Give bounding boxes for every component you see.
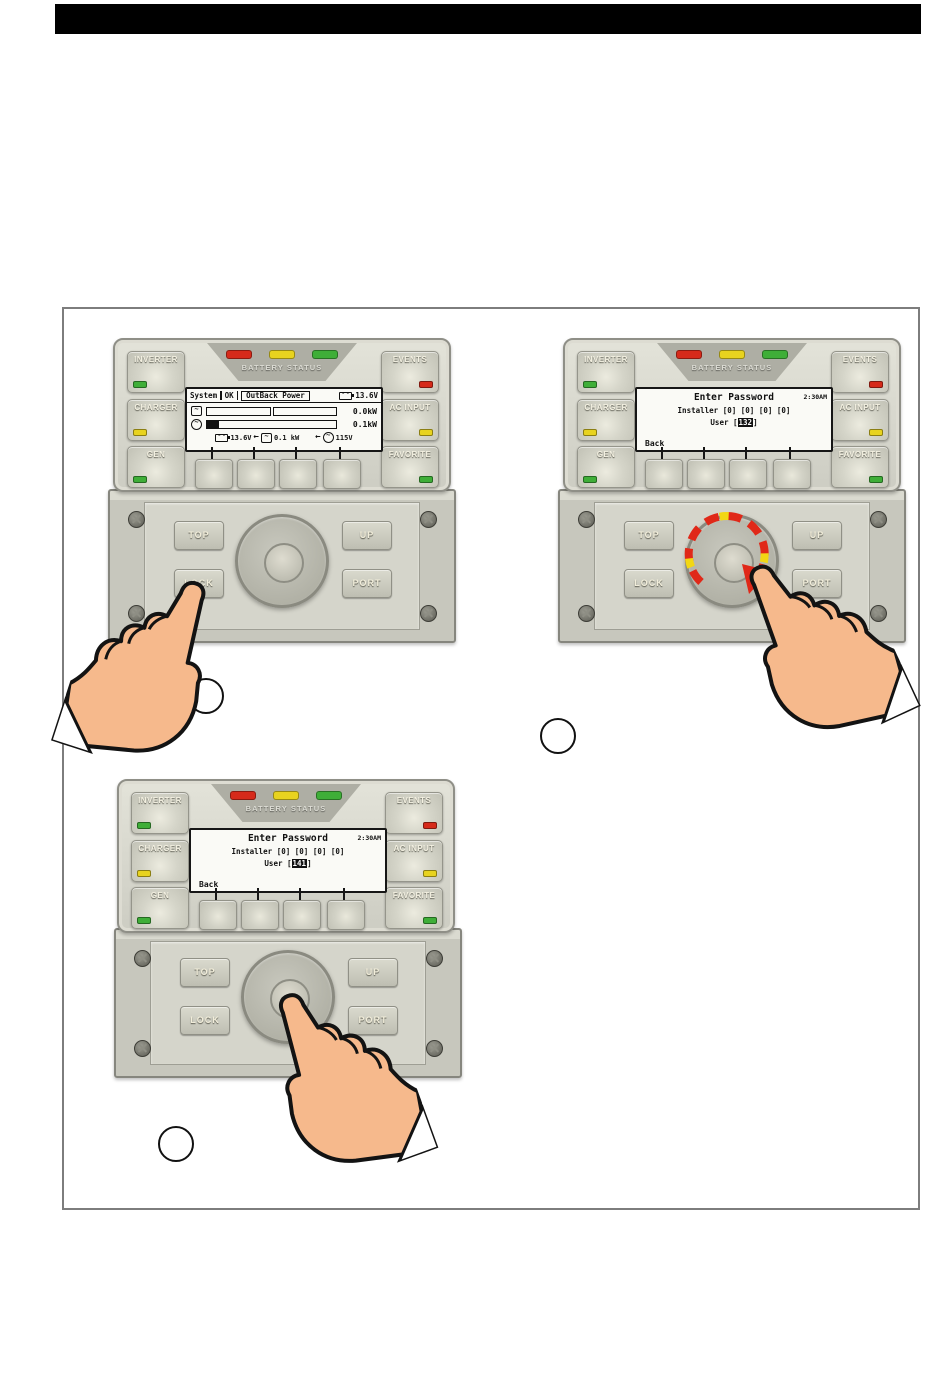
ac-power-bar [206,420,337,429]
battery-icon [339,392,352,400]
battery-status-panel: BATTERY STATUS [657,343,807,381]
inverter-button[interactable]: INVERTER [127,351,185,393]
inverter-led [133,381,147,388]
inverter-icon [191,406,202,416]
battery-status-label: BATTERY STATUS [657,363,807,372]
favorite-led [423,917,437,924]
lock-label: LOCK [625,570,673,597]
mate3-display-panel-1: INVERTER CHARGER GEN EVENTS AC INPUT FAV… [113,338,451,492]
battery-icon [215,434,228,442]
gen-led [133,476,147,483]
installer-digits: [0] [0] [0] [0] [277,847,345,856]
clock-time: 2:30AM [358,834,381,842]
lcd-password-screen: Enter Password 2:30AM Installer [0] [0] … [189,828,387,893]
screw-icon [578,605,595,622]
bracket: ] [307,859,312,868]
screw-icon [578,511,595,528]
inverter-power-value: 0.0kW [341,407,377,416]
inverter-button[interactable]: INVERTER [577,351,635,393]
ac-input-led [419,429,433,436]
inverter-icon [261,433,272,443]
soft-key-1[interactable] [195,459,233,489]
installer-digits: [0] [0] [0] [0] [723,406,791,415]
bracket: [ [287,859,292,868]
gen-button[interactable]: GEN [577,446,635,488]
footer-inverter-power: 0.1 kW [274,434,299,442]
charger-label: CHARGER [578,403,634,412]
charger-label: CHARGER [128,403,184,412]
bracket: ] [753,418,758,427]
charger-label: CHARGER [132,844,188,853]
gen-led [137,917,151,924]
lcd-status-screen: System OK OutBack Power 13.6V 0.0kW 0.1k… [185,387,383,452]
manual-figure-page: INVERTER CHARGER GEN EVENTS AC INPUT FAV… [0,0,950,1397]
top-label: TOP [625,522,673,549]
header-bar [55,4,921,34]
charger-led [133,429,147,436]
soft-key-2[interactable] [237,459,275,489]
ac-input-led [869,429,883,436]
mate3-display-panel-3: INVERTER CHARGER GEN EVENTS AC INPUT FAV… [117,779,455,933]
gen-label: GEN [128,450,184,459]
inverter-label: INVERTER [128,355,184,364]
gen-label: GEN [578,450,634,459]
screw-icon [426,950,443,967]
clock-time: 2:30AM [804,393,827,401]
divider [237,391,239,400]
bracket: [ [733,418,738,427]
port-label: PORT [343,570,391,597]
favorite-button[interactable]: FAVORITE [831,446,889,488]
top-button[interactable]: TOP [174,521,224,550]
favorite-button[interactable]: FAVORITE [381,446,439,488]
ac-icon [323,432,334,443]
inverter-label: INVERTER [132,796,188,805]
gen-label: GEN [132,891,188,900]
mate3-display-panel-2: INVERTER CHARGER GEN EVENTS AC INPUT FAV… [563,338,901,492]
up-label: UP [343,522,391,549]
soft-key-1[interactable] [645,459,683,489]
left-arrow-icon: ← [254,434,259,441]
gen-button[interactable]: GEN [131,887,189,929]
battery-status-label: BATTERY STATUS [211,804,361,813]
soft-key-3[interactable] [729,459,767,489]
battery-status-yellow-led [719,350,745,359]
ac-input-button[interactable]: AC INPUT [381,399,439,441]
gen-led [583,476,597,483]
top-label: TOP [181,959,229,986]
step-marker [158,1126,194,1162]
favorite-button[interactable]: FAVORITE [385,887,443,929]
footer-ac-voltage: 115V [336,434,353,442]
events-button[interactable]: EVENTS [381,351,439,393]
soft-key-1[interactable] [199,900,237,930]
charger-led [583,429,597,436]
lcd-title: OutBack Power [241,391,310,401]
top-label: TOP [175,522,223,549]
ac-input-label: AC INPUT [382,403,438,412]
battery-status-panel: BATTERY STATUS [211,784,361,822]
soft-key-4[interactable] [327,900,365,930]
inverter-led [137,822,151,829]
soft-key-2[interactable] [687,459,725,489]
ac-input-led [423,870,437,877]
battery-status-label: BATTERY STATUS [207,363,357,372]
up-button[interactable]: UP [342,521,392,550]
soft-key-3[interactable] [279,459,317,489]
step-marker [540,718,576,754]
lcd-password-screen: Enter Password 2:30AM Installer [0] [0] … [635,387,833,452]
favorite-label: FAVORITE [382,450,438,459]
ac-input-button[interactable]: AC INPUT [831,399,889,441]
events-label: EVENTS [382,355,438,364]
charger-button[interactable]: CHARGER [127,399,185,441]
battery-status-yellow-led [269,350,295,359]
left-arrow-icon: ← [315,434,320,441]
battery-status-panel: BATTERY STATUS [207,343,357,381]
soft-key-3[interactable] [283,900,321,930]
battery-status-red-led [230,791,256,800]
lcd-battery-voltage: 13.6V [355,391,378,400]
soft-key-4[interactable] [773,459,811,489]
soft-key-2[interactable] [241,900,279,930]
charger-button[interactable]: CHARGER [131,840,189,882]
inverter-label: INVERTER [578,355,634,364]
gen-button[interactable]: GEN [127,446,185,488]
soft-key-4[interactable] [323,459,361,489]
inverter-button[interactable]: INVERTER [131,792,189,834]
center-button[interactable] [264,543,304,583]
divider [220,391,222,400]
screw-icon [420,511,437,528]
ac-icon [191,419,202,430]
screw-icon [128,511,145,528]
favorite-label: FAVORITE [386,891,442,900]
events-led [423,822,437,829]
favorite-led [419,476,433,483]
lcd-menu-label: System [190,391,217,400]
events-button[interactable]: EVENTS [831,351,889,393]
charger-led [137,870,151,877]
battery-status-red-led [676,350,702,359]
user-label: User [264,859,282,868]
user-label: User [710,418,728,427]
ac-power-value: 0.1kW [341,420,377,429]
screw-icon [426,1040,443,1057]
battery-status-red-led [226,350,252,359]
password-title: Enter Password [694,392,774,403]
footer-battery-voltage: 13.6V [230,434,251,442]
events-led [869,381,883,388]
user-password-value: 132 [738,418,754,427]
favorite-led [869,476,883,483]
installer-label: Installer [678,406,719,415]
ac-input-label: AC INPUT [386,844,442,853]
battery-status-green-led [316,791,342,800]
battery-status-yellow-led [273,791,299,800]
screw-icon [420,605,437,622]
screw-icon [134,950,151,967]
screw-icon [870,511,887,528]
user-password-value: 141 [292,859,308,868]
port-button[interactable]: PORT [342,569,392,598]
battery-status-green-led [312,350,338,359]
top-button[interactable]: TOP [180,958,230,987]
screw-icon [134,1040,151,1057]
charger-button[interactable]: CHARGER [577,399,635,441]
events-led [419,381,433,388]
events-label: EVENTS [832,355,888,364]
events-button[interactable]: EVENTS [385,792,443,834]
battery-status-green-led [762,350,788,359]
inverter-led [583,381,597,388]
ac-input-label: AC INPUT [832,403,888,412]
installer-label: Installer [232,847,273,856]
lcd-status-label: OK [225,391,234,400]
password-title: Enter Password [248,833,328,844]
ac-input-button[interactable]: AC INPUT [385,840,443,882]
inverter-power-bar [206,407,337,416]
events-label: EVENTS [386,796,442,805]
favorite-label: FAVORITE [832,450,888,459]
